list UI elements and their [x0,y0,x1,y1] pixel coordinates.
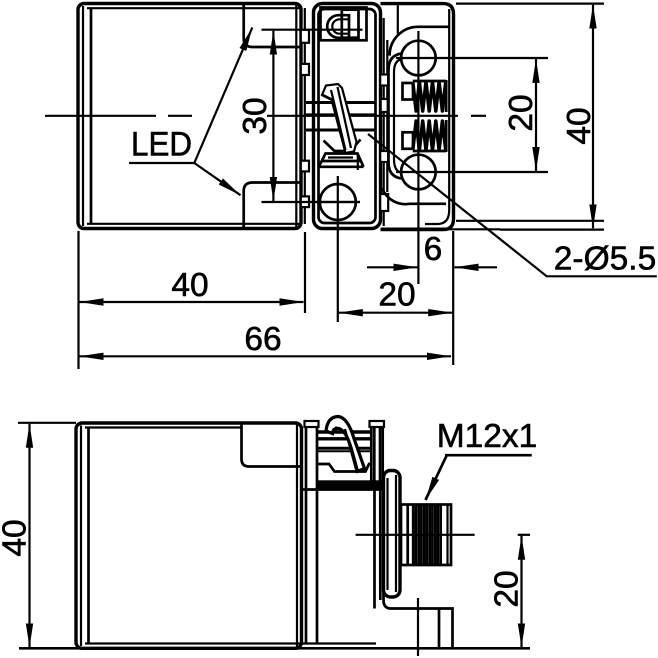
svg-text:20: 20 [503,94,540,131]
svg-text:6: 6 [424,231,443,268]
svg-text:66: 66 [244,321,281,358]
svg-text:40: 40 [561,107,598,144]
svg-text:LED: LED [131,126,192,164]
svg-text:20: 20 [489,570,526,607]
svg-text:2-Ø5.5: 2-Ø5.5 [554,241,656,278]
svg-text:20: 20 [378,277,415,314]
svg-text:M12x1: M12x1 [437,418,538,455]
svg-text:40: 40 [0,519,34,556]
svg-text:30: 30 [237,97,274,134]
svg-text:40: 40 [171,267,208,304]
